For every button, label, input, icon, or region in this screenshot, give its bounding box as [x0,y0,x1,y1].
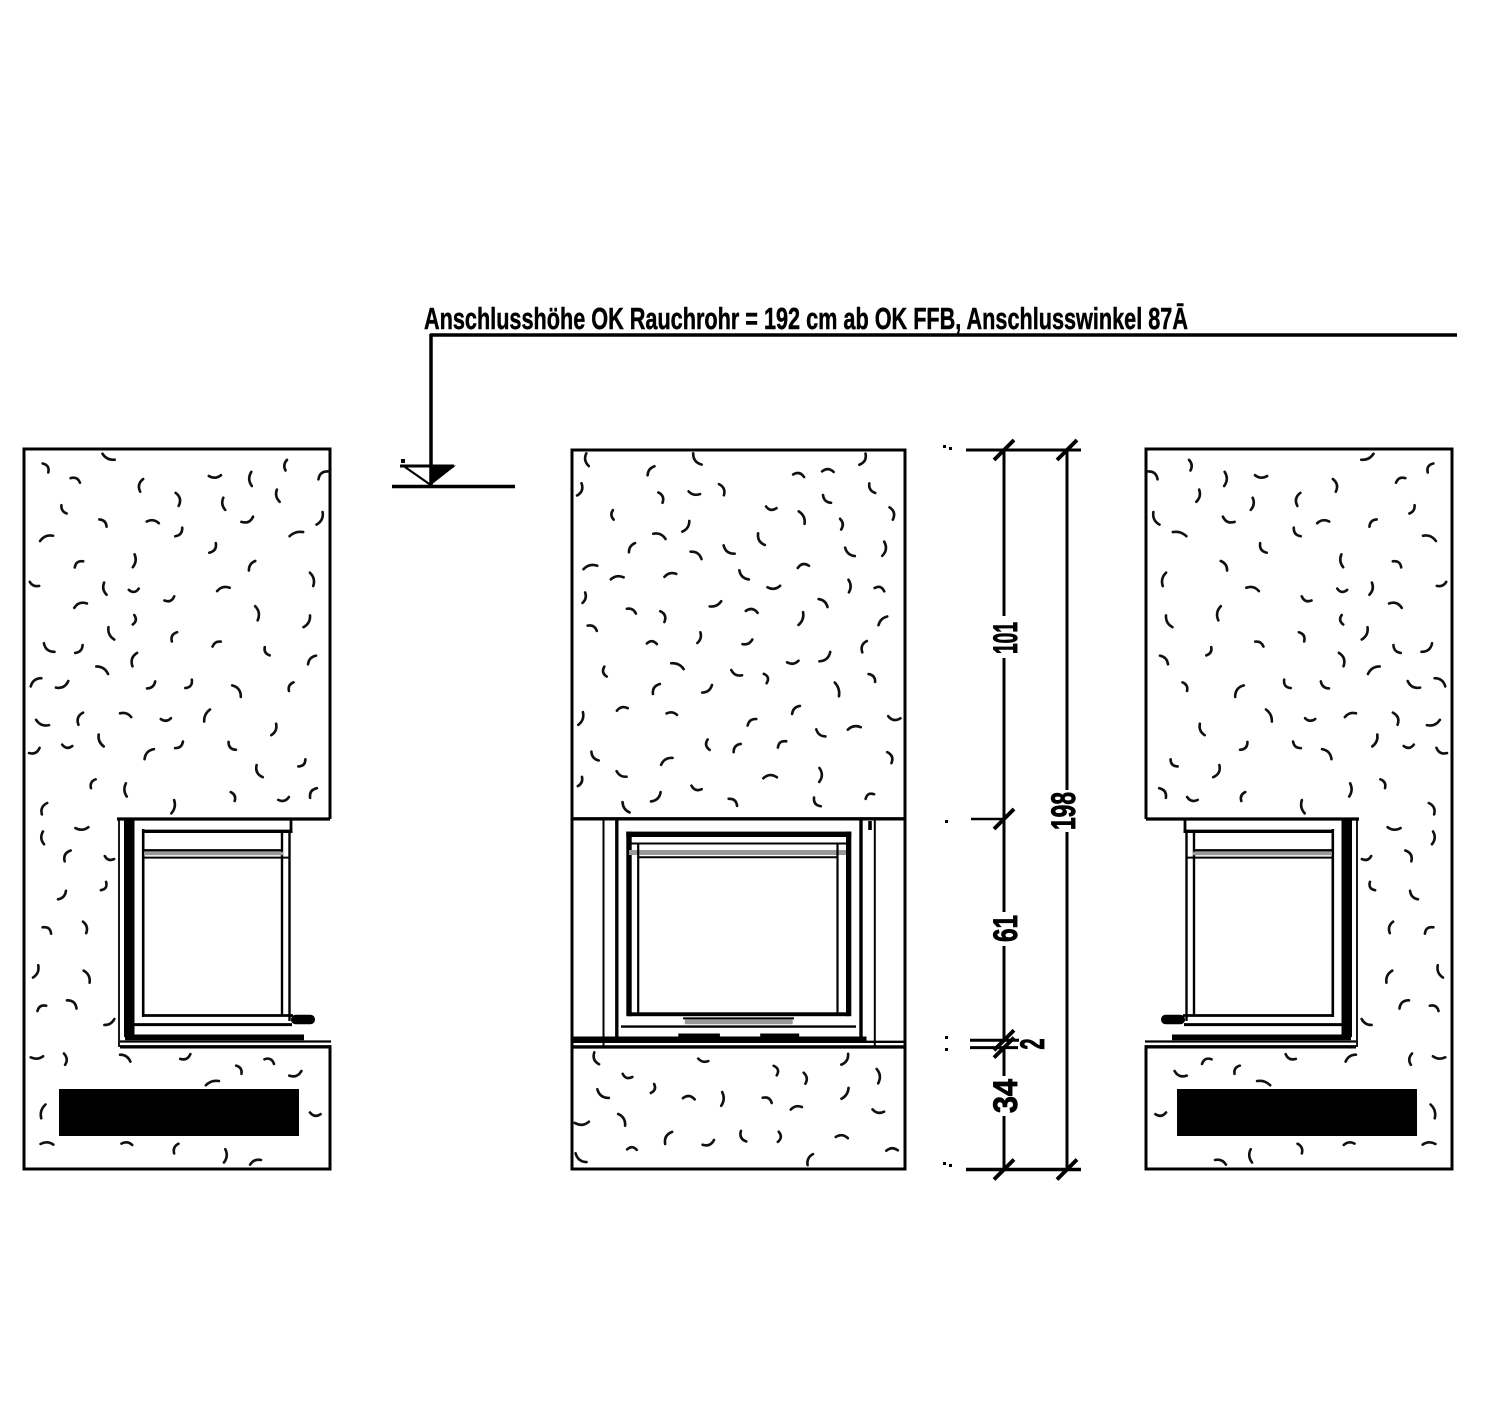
svg-text:61: 61 [987,915,1025,942]
svg-text:198: 198 [1045,792,1083,830]
svg-text:34: 34 [987,1079,1025,1113]
svg-text:101: 101 [987,622,1025,654]
svg-text:Anschlusshöhe OK Rauchrohr = 1: Anschlusshöhe OK Rauchrohr = 192 cm ab O… [424,301,1188,336]
svg-text:2: 2 [1014,1039,1052,1050]
